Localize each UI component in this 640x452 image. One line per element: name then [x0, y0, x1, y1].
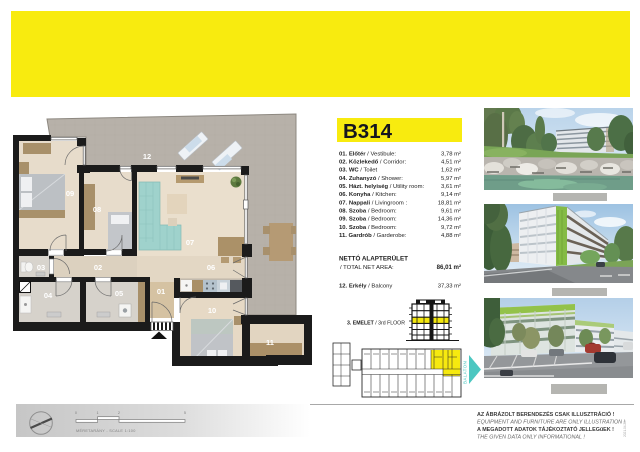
- svg-text:05: 05: [115, 289, 123, 298]
- svg-text:NETTÓ ALAPTERÜLET: NETTÓ ALAPTERÜLET: [339, 254, 408, 263]
- svg-text:10. Szoba / Bedroom:: 10. Szoba / Bedroom:: [339, 225, 397, 231]
- svg-text:06: 06: [207, 263, 215, 272]
- svg-text:02. Közlekedő / Corridor:: 02. Közlekedő / Corridor:: [339, 160, 406, 166]
- svg-text:A MEGADOTT ADATOK TÁJÉKOZTATÓ: A MEGADOTT ADATOK TÁJÉKOZTATÓ JELLEGűEK …: [477, 425, 614, 433]
- svg-text:04. Zuhanyzó / Shower:: 04. Zuhanyzó / Shower:: [339, 176, 403, 182]
- svg-text:BALATON: BALATON: [463, 361, 468, 384]
- svg-text:9,72 m²: 9,72 m²: [441, 225, 461, 231]
- svg-text:37,33 m²: 37,33 m²: [438, 284, 461, 290]
- svg-text:01: 01: [157, 287, 165, 296]
- svg-text:11. Gardrób / Garderobe:: 11. Gardrób / Garderobe:: [339, 233, 407, 239]
- svg-text:11: 11: [266, 338, 274, 347]
- svg-text:01. Előtér / Vestibule:: 01. Előtér / Vestibule:: [339, 151, 396, 157]
- svg-text:09. Szoba / Bedroom:: 09. Szoba / Bedroom:: [339, 217, 397, 223]
- svg-text:86,01 m²: 86,01 m²: [437, 264, 461, 271]
- svg-text:05. Házt. helyiség / Utility r: 05. Házt. helyiség / Utility room:: [339, 184, 424, 190]
- svg-text:THE GIVEN DATA ONLY INFORMATIO: THE GIVEN DATA ONLY INFORMATIONAL !: [477, 435, 585, 441]
- svg-text:09: 09: [66, 189, 74, 198]
- svg-text:08: 08: [93, 205, 101, 214]
- svg-text:2: 2: [118, 411, 120, 415]
- svg-text:3,78 m²: 3,78 m²: [441, 151, 461, 157]
- svg-text:/ TOTAL NET AREA:: / TOTAL NET AREA:: [340, 265, 394, 271]
- svg-text:02: 02: [94, 263, 102, 272]
- svg-text:0: 0: [75, 411, 77, 415]
- svg-text:07. Nappali / Livingroom :: 07. Nappali / Livingroom :: [339, 200, 407, 206]
- svg-text:9,14 m²: 9,14 m²: [441, 192, 461, 198]
- svg-text:2021.04.20.: 2021.04.20.: [623, 420, 627, 437]
- svg-text:EQUIPMENT AND FURNITURE ARE ON: EQUIPMENT AND FURNITURE ARE ONLY ILLUSTR…: [477, 420, 626, 426]
- svg-text:12: 12: [143, 152, 151, 161]
- svg-text:AZ ÁBRÁZOLT BERENDEZÉS CSAK IL: AZ ÁBRÁZOLT BERENDEZÉS CSAK ILLUSZTRÁCIÓ…: [477, 410, 615, 418]
- svg-text:3,61 m²: 3,61 m²: [441, 184, 461, 190]
- svg-text:1,62 m²: 1,62 m²: [441, 168, 461, 174]
- svg-text:4,88 m²: 4,88 m²: [441, 233, 461, 239]
- svg-text:3. EMELET / 3rd FLOOR: 3. EMELET / 3rd FLOOR: [347, 321, 405, 327]
- svg-text:14,36 m²: 14,36 m²: [438, 217, 461, 223]
- svg-text:03: 03: [37, 263, 45, 272]
- svg-text:10: 10: [208, 306, 216, 315]
- svg-text:12. Erkély / Balcony: 12. Erkély / Balcony: [339, 284, 392, 290]
- svg-text:08. Szoba / Bedroom:: 08. Szoba / Bedroom:: [339, 208, 397, 214]
- svg-text:18,81 m²: 18,81 m²: [438, 200, 461, 206]
- svg-text:4,51 m²: 4,51 m²: [441, 160, 461, 166]
- svg-text:B314: B314: [343, 120, 393, 143]
- svg-text:5: 5: [184, 411, 186, 415]
- svg-text:03. WC / Toilet: 03. WC / Toilet: [339, 168, 378, 174]
- svg-text:04: 04: [44, 291, 53, 300]
- svg-text:MÉRETARÁNY - SCALE 1:100: MÉRETARÁNY - SCALE 1:100: [76, 428, 136, 433]
- svg-text:9,61 m²: 9,61 m²: [441, 208, 461, 214]
- svg-text:5,97 m²: 5,97 m²: [441, 176, 461, 182]
- svg-text:07: 07: [186, 238, 194, 247]
- svg-text:06. Konyha / Kitchen:: 06. Konyha / Kitchen:: [339, 192, 397, 198]
- svg-text:1: 1: [97, 411, 99, 415]
